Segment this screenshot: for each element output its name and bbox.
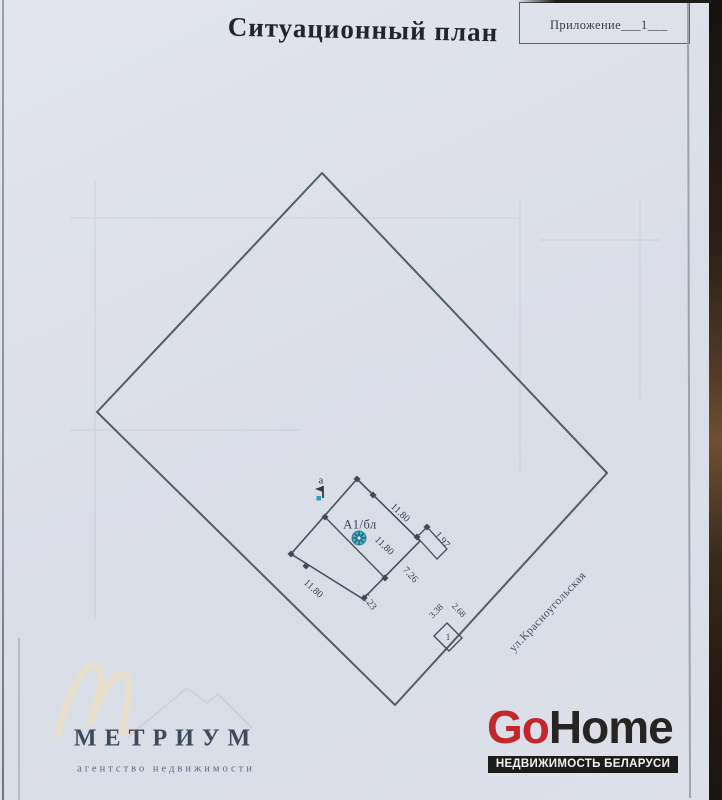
- gohome-tagline-bar: НЕДВИЖИМОСТЬ БЕЛАРУСИ: [488, 756, 678, 773]
- paper-fold-line: [18, 638, 20, 800]
- metrium-logo-text: МЕТРИУМ: [74, 726, 258, 753]
- point-label: а: [319, 476, 323, 487]
- bleedthrough-lines: [70, 180, 660, 620]
- photo-background-top: [517, 0, 712, 3]
- metrium-tagline: агентство недвижимости: [77, 764, 255, 775]
- shed-number-label: 1: [446, 632, 451, 642]
- gohome-logo-home: Home: [549, 701, 673, 753]
- photo-background-right: [709, 0, 722, 800]
- house-label: А1/бл: [343, 518, 377, 533]
- gohome-logo: GoHome: [487, 704, 673, 750]
- house-outline: [291, 479, 447, 599]
- paper-left-edge: [2, 0, 4, 800]
- scanned-site-plan-page: Ситуационный план Приложение___1___: [0, 0, 722, 800]
- survey-marker-icon: [352, 531, 366, 545]
- point-marker-icon: [315, 486, 323, 501]
- gohome-logo-go: Go: [487, 701, 549, 753]
